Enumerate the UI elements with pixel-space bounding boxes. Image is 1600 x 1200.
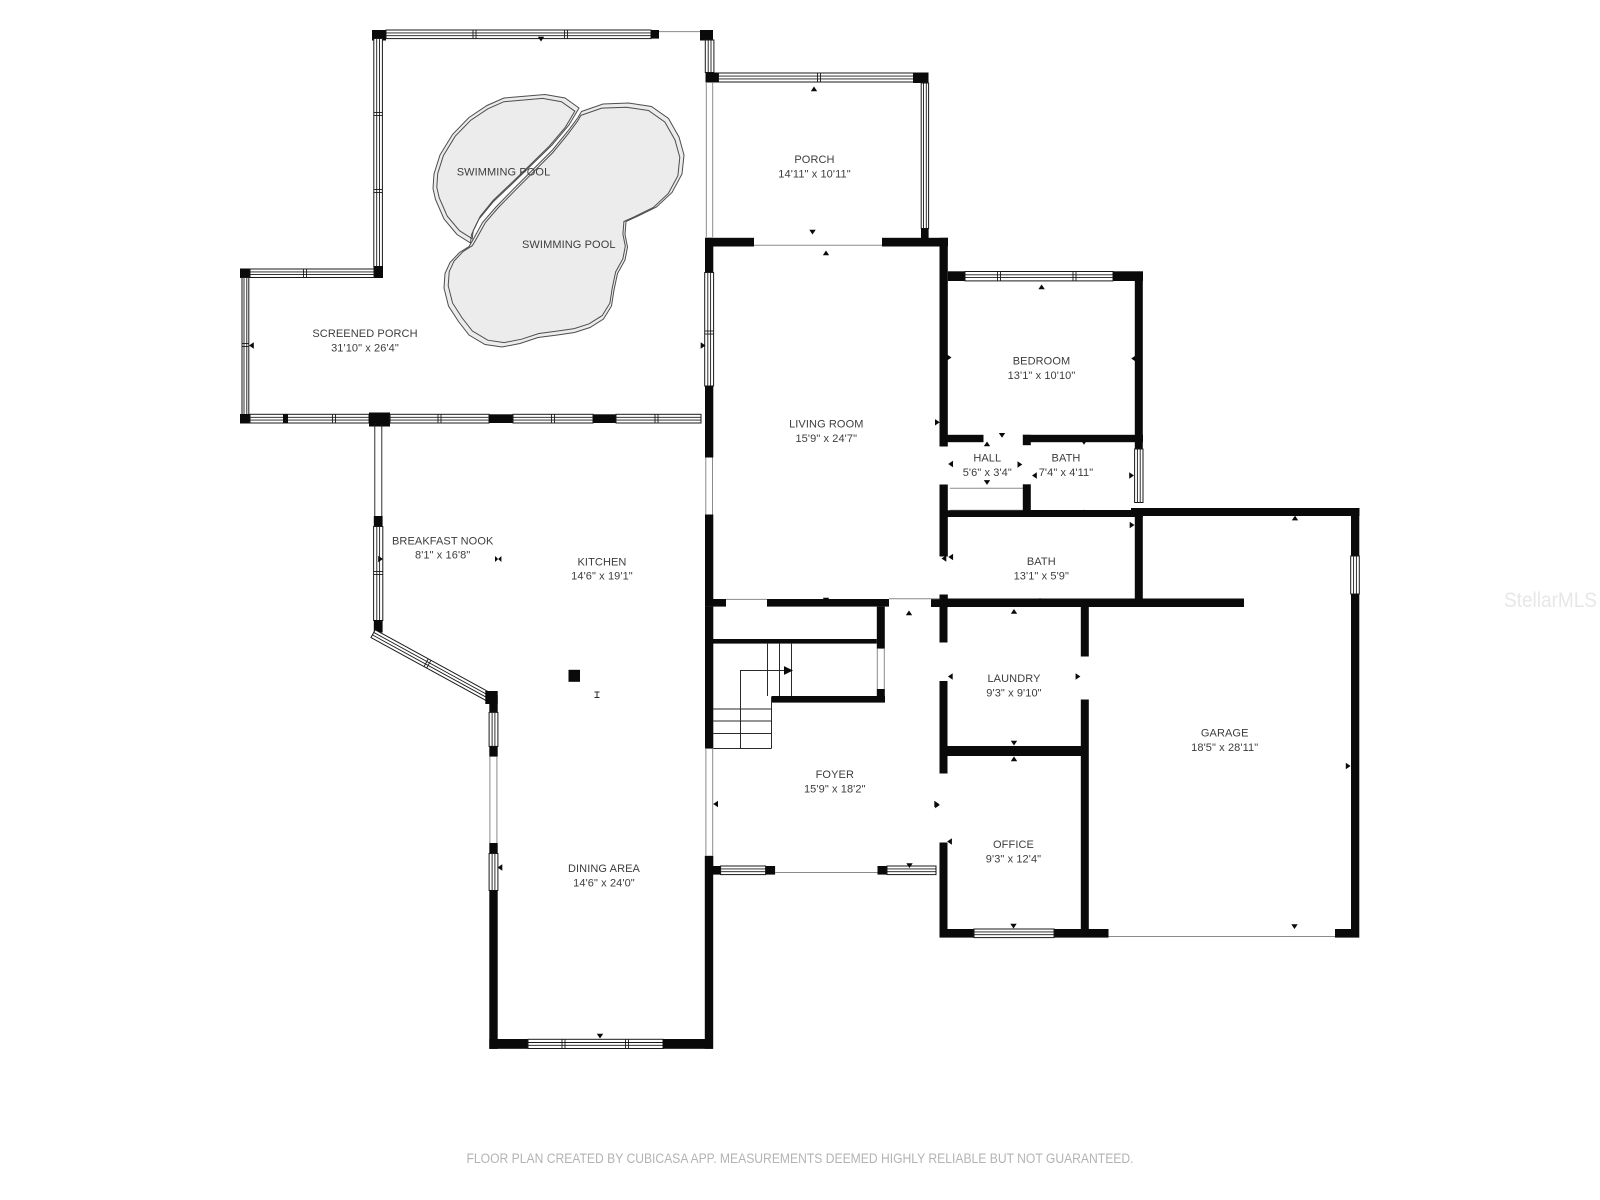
svg-text:13'1" x 5'9": 13'1" x 5'9" — [1014, 570, 1069, 582]
svg-text:LIVING ROOM: LIVING ROOM — [789, 419, 863, 431]
svg-text:SWIMMING POOL: SWIMMING POOL — [457, 167, 551, 179]
svg-text:31'10" x 26'4": 31'10" x 26'4" — [331, 342, 399, 354]
svg-text:13'1" x 10'10": 13'1" x 10'10" — [1008, 370, 1076, 382]
svg-text:14'6" x 24'0": 14'6" x 24'0" — [573, 877, 635, 889]
svg-text:9'3" x 12'4": 9'3" x 12'4" — [986, 853, 1041, 865]
svg-text:LAUNDRY: LAUNDRY — [987, 673, 1041, 685]
svg-text:PORCH: PORCH — [794, 154, 834, 166]
svg-text:HALL: HALL — [973, 453, 1001, 465]
svg-text:8'1" x 16'8": 8'1" x 16'8" — [415, 550, 470, 562]
svg-text:FLOOR PLAN CREATED BY CUBICASA: FLOOR PLAN CREATED BY CUBICASA APP. MEAS… — [467, 1151, 1134, 1166]
svg-text:BREAKFAST NOOK: BREAKFAST NOOK — [392, 535, 494, 547]
svg-text:SCREENED PORCH: SCREENED PORCH — [312, 328, 417, 340]
svg-text:KITCHEN: KITCHEN — [578, 556, 627, 568]
svg-text:FOYER: FOYER — [816, 769, 854, 781]
svg-text:BATH: BATH — [1052, 453, 1081, 465]
svg-text:BATH: BATH — [1027, 556, 1056, 568]
svg-text:14'11" x 10'11": 14'11" x 10'11" — [778, 168, 850, 180]
svg-text:OFFICE: OFFICE — [993, 839, 1034, 851]
svg-text:18'5" x 28'11": 18'5" x 28'11" — [1191, 742, 1258, 754]
svg-text:15'9" x 18'2": 15'9" x 18'2" — [804, 783, 866, 795]
svg-text:StellarMLS: StellarMLS — [1504, 588, 1597, 612]
svg-text:DINING AREA: DINING AREA — [568, 863, 641, 875]
svg-text:5'6" x 3'4": 5'6" x 3'4" — [963, 467, 1012, 479]
svg-text:14'6" x 19'1": 14'6" x 19'1" — [571, 571, 633, 583]
svg-text:15'9" x 24'7": 15'9" x 24'7" — [795, 433, 857, 445]
svg-text:9'3" x 9'10": 9'3" x 9'10" — [986, 687, 1041, 699]
svg-text:SWIMMING POOL: SWIMMING POOL — [522, 239, 616, 251]
svg-text:7'4" x 4'11": 7'4" x 4'11" — [1039, 467, 1094, 479]
svg-text:GARAGE: GARAGE — [1201, 728, 1249, 740]
svg-text:BEDROOM: BEDROOM — [1013, 356, 1071, 368]
